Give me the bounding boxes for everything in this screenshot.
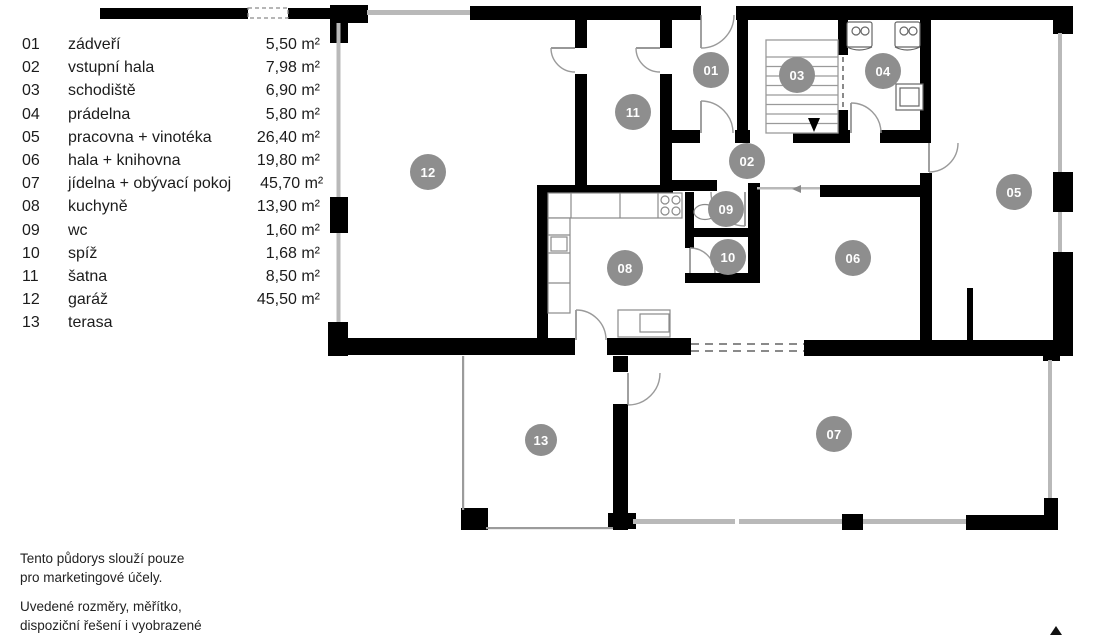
room-marker-09: 09 — [708, 191, 744, 227]
room-area: 7,98 m² — [228, 56, 320, 79]
room-area: 26,40 m² — [228, 126, 320, 149]
legend-row: 09wc1,60 m² — [22, 219, 320, 242]
disclaimer-line: Tento půdorys slouží pouze — [20, 549, 205, 568]
legend-row: 12garáž45,50 m² — [22, 288, 320, 311]
room-number: 11 — [22, 265, 68, 288]
room-marker-05: 05 — [996, 174, 1032, 210]
room-name: pracovna + vinotéka — [68, 126, 228, 149]
room-marker-13: 13 — [525, 424, 557, 456]
legend-row: 01zádveří5,50 m² — [22, 33, 320, 56]
room-area: 6,90 m² — [228, 79, 320, 102]
room-marker-01: 01 — [693, 52, 729, 88]
disclaimer-line: Uvedené rozměry, měřítko, — [20, 597, 205, 616]
room-area: 5,80 m² — [228, 103, 320, 126]
room-area: 45,50 m² — [228, 288, 320, 311]
disclaimer-text: Tento půdorys slouží pouzepro marketingo… — [20, 549, 205, 635]
legend-row: 02vstupní hala7,98 m² — [22, 56, 320, 79]
room-marker-11: 11 — [615, 94, 651, 130]
room-name: šatna — [68, 265, 228, 288]
legend-row: 04prádelna5,80 m² — [22, 103, 320, 126]
room-name: schodiště — [68, 79, 228, 102]
room-number: 03 — [22, 79, 68, 102]
legend-row: 03schodiště6,90 m² — [22, 79, 320, 102]
room-number: 08 — [22, 195, 68, 218]
legend-row: 13terasa — [22, 311, 320, 334]
legend-row: 07jídelna + obývací pokoj45,70 m² — [22, 172, 320, 195]
room-name: vstupní hala — [68, 56, 228, 79]
washing-machine-icon — [847, 22, 872, 50]
room-number: 13 — [22, 311, 68, 334]
room-number: 05 — [22, 126, 68, 149]
legend-row: 08kuchyně13,90 m² — [22, 195, 320, 218]
room-name: wc — [68, 219, 228, 242]
legend-row: 05pracovna + vinotéka26,40 m² — [22, 126, 320, 149]
room-area: 1,60 m² — [228, 219, 320, 242]
disclaimer-line: pro marketingové účely. — [20, 568, 205, 587]
room-name: jídelna + obývací pokoj — [68, 172, 231, 195]
room-marker-07: 07 — [816, 416, 852, 452]
door-garage-wardrobe — [551, 48, 575, 72]
room-number: 02 — [22, 56, 68, 79]
disclaimer-paragraph: Tento půdorys slouží pouzepro marketingo… — [20, 549, 205, 587]
disclaimer-paragraph: Uvedené rozměry, měřítko,dispoziční řeše… — [20, 597, 205, 635]
room-number: 10 — [22, 242, 68, 265]
door-terrace-kitchen — [576, 310, 606, 340]
garage-gate-dashed — [248, 8, 288, 18]
room-name: terasa — [68, 311, 228, 334]
room-area: 1,68 m² — [228, 242, 320, 265]
room-name: garáž — [68, 288, 228, 311]
laundry-sink-icon — [896, 84, 923, 110]
legend-row: 06hala + knihovna19,80 m² — [22, 149, 320, 172]
north-arrow-icon — [1050, 626, 1062, 635]
room-name: spíž — [68, 242, 228, 265]
door-terrace-livingroom — [628, 373, 660, 405]
room-marker-10: 10 — [710, 239, 746, 275]
room-number: 01 — [22, 33, 68, 56]
room-marker-12: 12 — [410, 154, 446, 190]
legend-row: 11šatna8,50 m² — [22, 265, 320, 288]
room-marker-03: 03 — [779, 57, 815, 93]
room-marker-06: 06 — [835, 240, 871, 276]
passage-arrow — [792, 185, 801, 193]
room-area: 45,70 m² — [231, 172, 323, 195]
kitchen-sink-icon — [551, 237, 567, 251]
dryer-icon — [895, 22, 920, 50]
room-area: 13,90 m² — [228, 195, 320, 218]
room-area: 8,50 m² — [228, 265, 320, 288]
room-legend: 01zádveří5,50 m²02vstupní hala7,98 m²03s… — [22, 33, 320, 334]
room-number: 07 — [22, 172, 68, 195]
room-number: 09 — [22, 219, 68, 242]
entrance-door — [701, 15, 734, 48]
room-name: hala + knihovna — [68, 149, 228, 172]
door-laundry — [851, 103, 881, 133]
room-marker-08: 08 — [607, 250, 643, 286]
room-marker-04: 04 — [865, 53, 901, 89]
door-foyer-hall — [701, 101, 733, 133]
disclaimer-line: dispoziční řešení i vyobrazené — [20, 616, 205, 635]
room-name: zádveří — [68, 33, 228, 56]
kitchen-island — [618, 310, 670, 337]
floorplan-page: 01zádveří5,50 m²02vstupní hala7,98 m²03s… — [0, 0, 1111, 635]
room-marker-02: 02 — [729, 143, 765, 179]
door-wardrobe-foyer — [636, 48, 660, 72]
room-area: 5,50 m² — [228, 33, 320, 56]
room-number: 12 — [22, 288, 68, 311]
door-hall-study — [929, 143, 958, 172]
room-area: 19,80 m² — [228, 149, 320, 172]
room-name: kuchyně — [68, 195, 228, 218]
room-name: prádelna — [68, 103, 228, 126]
legend-row: 10spíž1,68 m² — [22, 242, 320, 265]
room-number: 04 — [22, 103, 68, 126]
room-number: 06 — [22, 149, 68, 172]
windows-layer — [337, 10, 1063, 524]
